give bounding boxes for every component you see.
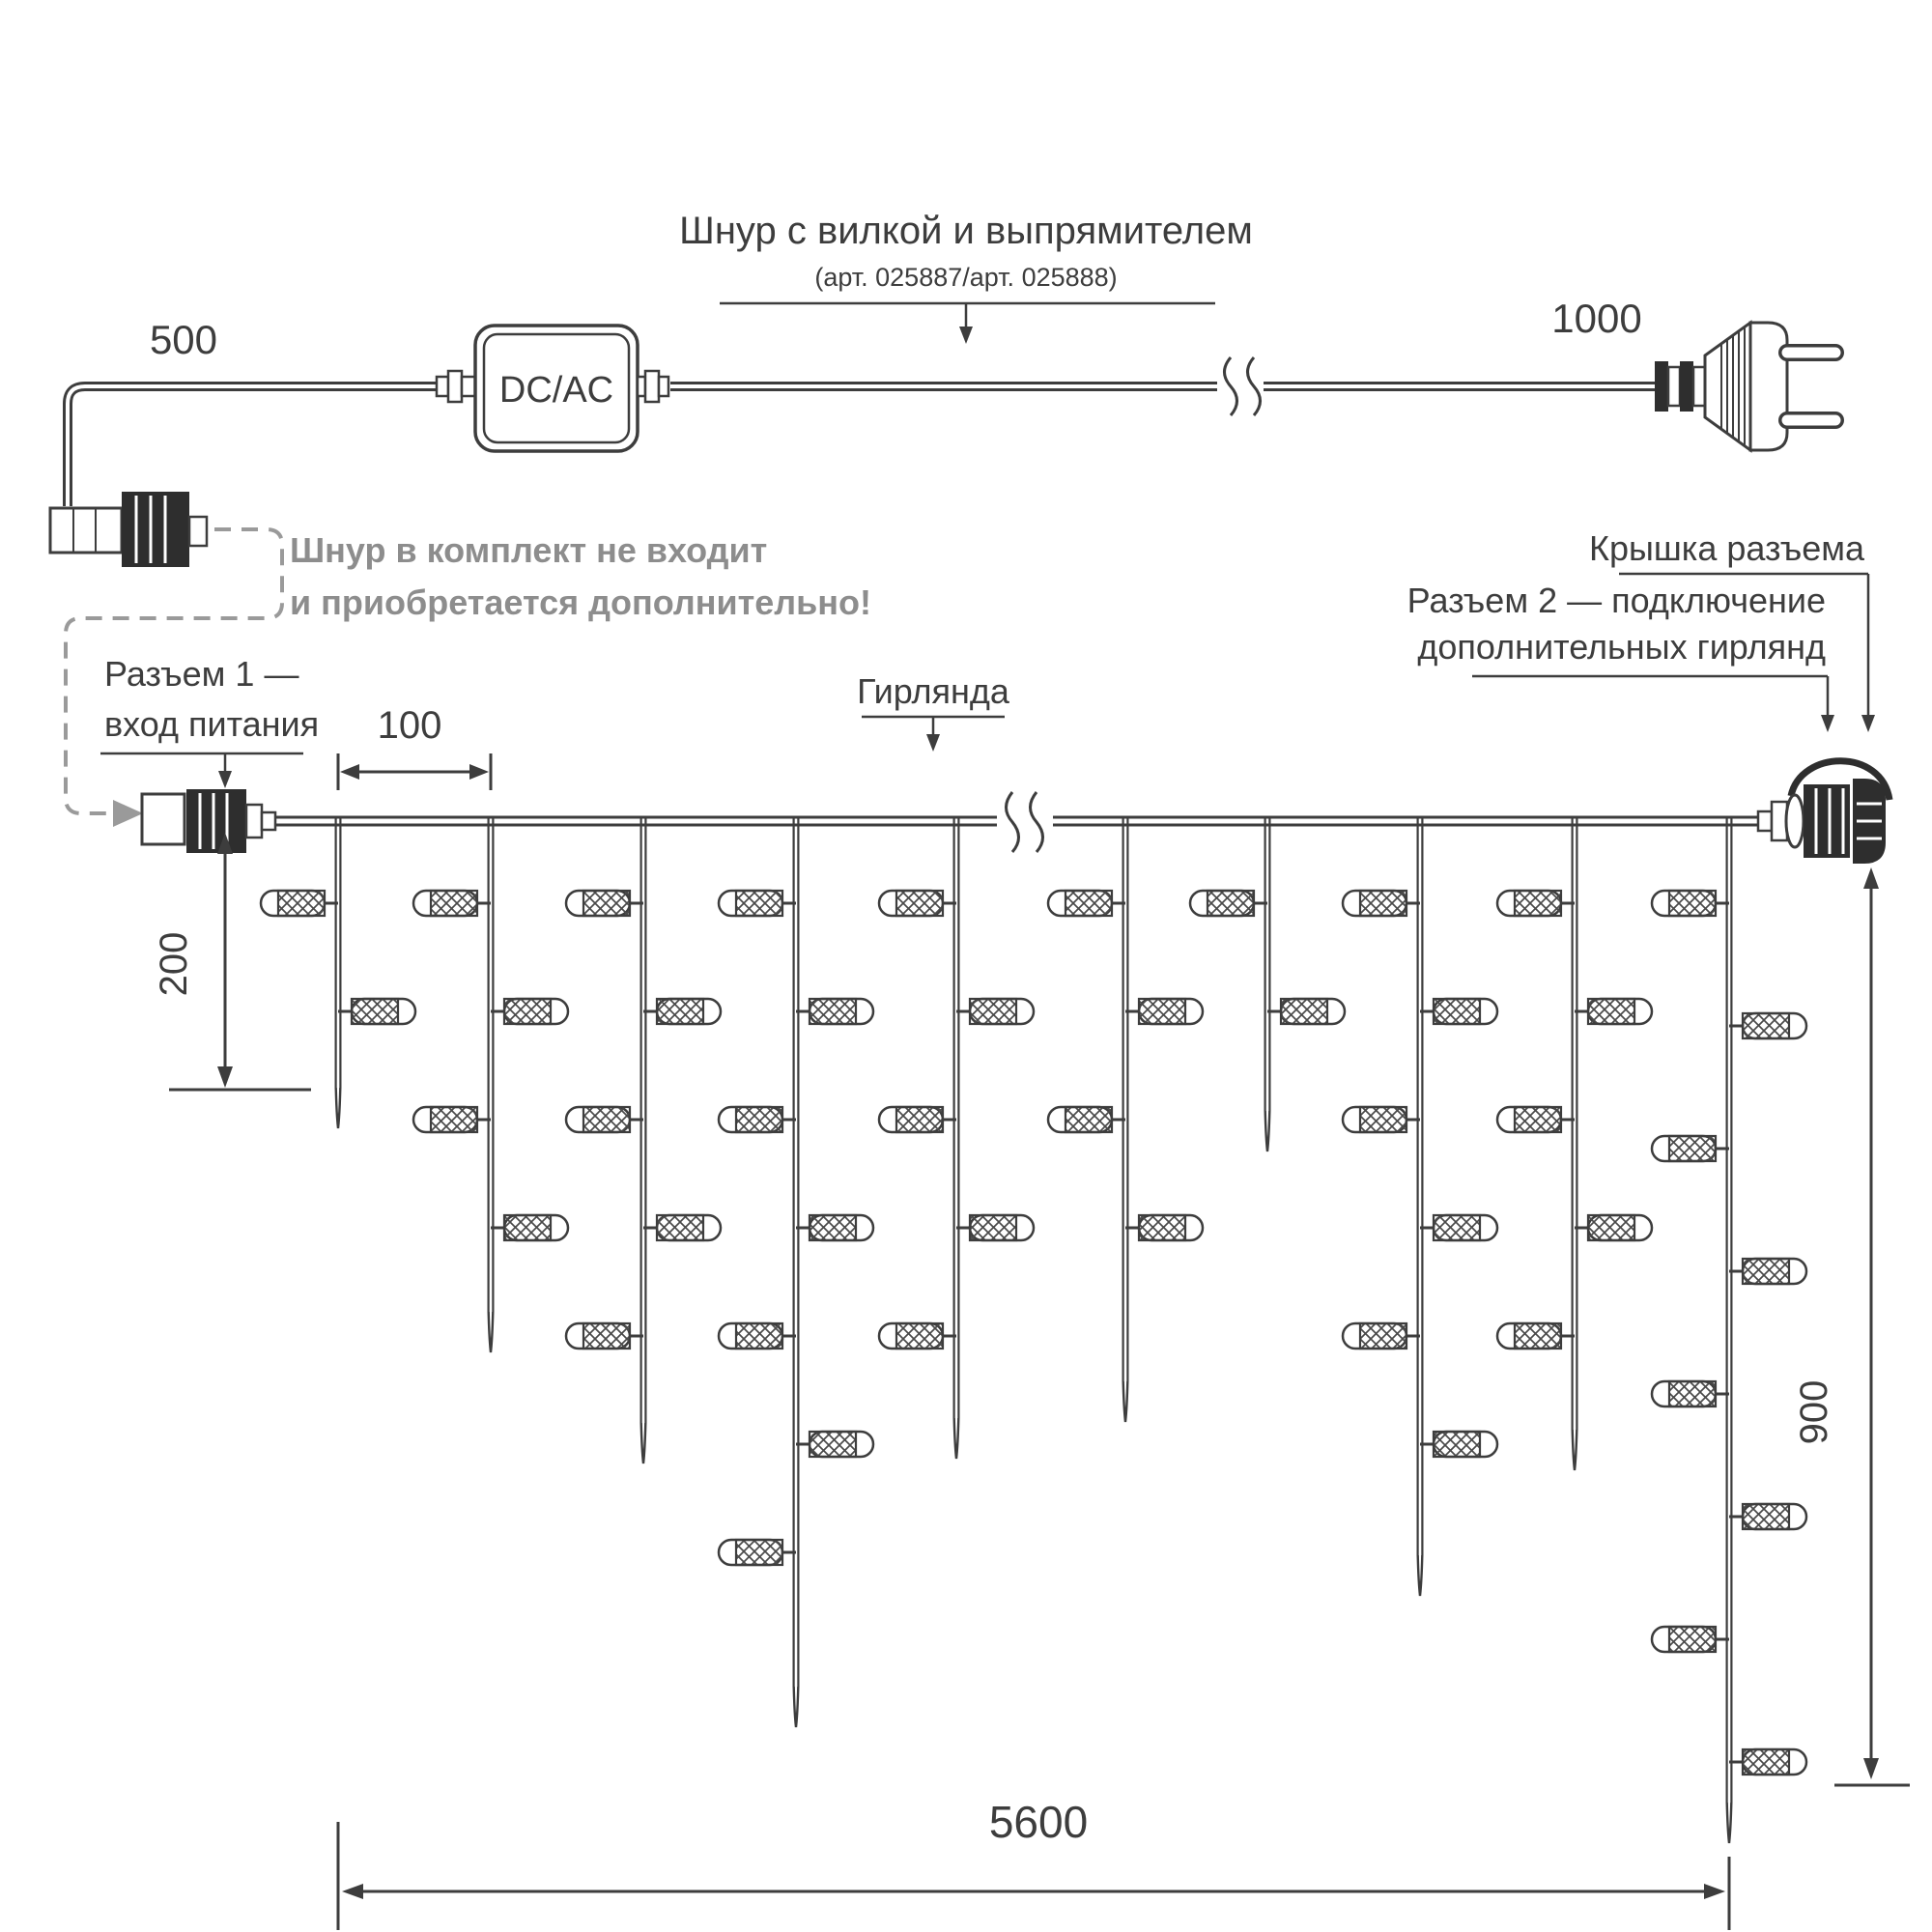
drop-tip	[1418, 1555, 1423, 1596]
arrow-down-icon	[1821, 715, 1834, 732]
connector2-label: Разъем 2 — подключение дополнительных ги…	[1407, 581, 1834, 732]
bulb-hatch	[736, 1540, 782, 1565]
connector2-label-line2: дополнительных гирлянд	[1417, 627, 1826, 667]
icicle-drop	[413, 817, 568, 1352]
cord-article-numbers: (арт. 025887/арт. 025888)	[814, 263, 1117, 292]
bulb-hatch	[970, 1215, 1016, 1240]
icicle-drop	[1343, 817, 1497, 1596]
bulb-hatch	[1743, 1259, 1789, 1284]
bulb-hatch	[583, 1107, 630, 1132]
arrow-right-icon	[469, 764, 489, 780]
drop-tip	[1265, 1111, 1270, 1151]
garland-main-wire	[273, 792, 1761, 852]
arrow-down-icon	[1863, 1758, 1879, 1779]
bulb-hatch	[583, 1323, 630, 1349]
bulb-hatch	[810, 999, 856, 1024]
bulb-hatch	[1139, 999, 1185, 1024]
bulb-hatch	[1434, 999, 1480, 1024]
dim-100-value: 100	[378, 704, 442, 747]
cord-title: Шнур с вилкой и выпрямителем	[679, 210, 1253, 252]
dim-900-value: 900	[1793, 1380, 1835, 1445]
bulb-hatch	[736, 891, 782, 916]
bulb-hatch	[1588, 1215, 1634, 1240]
bulb-hatch	[1360, 1323, 1406, 1349]
note-line2: и приобретается дополнительно!	[290, 582, 871, 622]
bulb-hatch	[810, 1215, 856, 1240]
bulb-hatch	[1434, 1432, 1480, 1457]
connector2-label-line1: Разъем 2 — подключение	[1407, 581, 1826, 620]
bulb-hatch	[431, 891, 477, 916]
drop-tip	[1123, 1381, 1128, 1422]
arrow-right-icon	[1704, 1884, 1725, 1899]
dimension-100: 100	[338, 704, 491, 790]
arrow-down-icon	[217, 1066, 233, 1088]
dim-1000: 1000	[1551, 296, 1641, 341]
diagram-canvas: Шнур с вилкой и выпрямителем (арт. 02588…	[0, 0, 1932, 1932]
adapter-label: DC/AC	[499, 370, 613, 411]
bulb-hatch	[736, 1323, 782, 1349]
drop-tip	[1573, 1430, 1577, 1470]
tether-ring	[1786, 795, 1804, 847]
connector-ridged-body	[186, 789, 246, 853]
drop-tip	[336, 1088, 341, 1128]
bulb-hatch	[736, 1107, 782, 1132]
bulb-hatch	[1360, 1107, 1406, 1132]
connector-ridged-body	[122, 492, 189, 567]
bulb-hatch	[1139, 1215, 1185, 1240]
gray-arrow-right-icon	[113, 800, 143, 827]
bulb-hatch	[1743, 1749, 1789, 1775]
icicle-drop	[261, 817, 415, 1128]
bulb-hatch	[1065, 891, 1112, 916]
connector-2-with-cap	[1758, 761, 1889, 864]
drop-tip	[794, 1687, 799, 1727]
bulb-hatch	[657, 1215, 703, 1240]
cap-label-text: Крышка разъема	[1589, 528, 1865, 568]
icicle-drop	[879, 817, 1034, 1459]
icicle-drop	[1497, 817, 1652, 1470]
dim-500: 500	[150, 317, 217, 362]
dimension-5600: 5600	[338, 1797, 1729, 1930]
arrow-down-icon	[959, 327, 973, 344]
icicle-drops	[261, 817, 1806, 1843]
bulb-hatch	[278, 891, 325, 916]
dimension-900: 900	[1793, 867, 1910, 1785]
icicle-drop	[1190, 817, 1345, 1151]
cord-output-connector	[50, 492, 207, 567]
bulb-hatch	[970, 999, 1016, 1024]
bulb-hatch	[504, 1215, 551, 1240]
power-cord-assembly: Шнур с вилкой и выпрямителем (арт. 02588…	[50, 210, 1835, 567]
bulb-hatch	[1515, 1107, 1561, 1132]
icicle-drop	[566, 817, 721, 1463]
bulb-hatch	[896, 1107, 943, 1132]
bulb-hatch	[896, 1323, 943, 1349]
connector1-label-line2: вход питания	[104, 704, 319, 744]
cable-break-icon	[997, 792, 1053, 852]
bulb-hatch	[1281, 999, 1327, 1024]
bulb-hatch	[657, 999, 703, 1024]
bulb-hatch	[1743, 1504, 1789, 1529]
bulb-hatch	[1360, 891, 1406, 916]
drop-tip	[489, 1312, 494, 1352]
bulb-hatch	[810, 1432, 856, 1457]
note-line1: Шнур в комплект не входит	[290, 530, 767, 570]
bulb-hatch	[504, 999, 551, 1024]
arrow-left-icon	[340, 764, 359, 780]
bulb-hatch	[431, 1107, 477, 1132]
drop-tip	[954, 1418, 959, 1459]
garland-label: Гирлянда	[857, 671, 1010, 752]
dc-ac-adapter: DC/AC	[437, 326, 668, 451]
icicle-drop	[1652, 817, 1806, 1843]
drop-tip	[1727, 1803, 1732, 1843]
bulb-hatch	[1588, 999, 1634, 1024]
bulb-hatch	[352, 999, 398, 1024]
icicle-drop	[719, 817, 873, 1727]
bulb-hatch	[1743, 1013, 1789, 1038]
bulb-hatch	[1669, 1136, 1716, 1161]
arrow-down-icon	[218, 771, 232, 788]
connector-1-power-input	[142, 789, 275, 853]
icicle-drop	[1048, 817, 1203, 1422]
garland-technical-drawing: Шнур с вилкой и выпрямителем (арт. 02588…	[0, 0, 1932, 1932]
bulb-hatch	[1515, 1323, 1561, 1349]
connector1-label: Разъем 1 — вход питания	[100, 654, 319, 788]
bulb-hatch	[1207, 891, 1254, 916]
bulb-hatch	[1434, 1215, 1480, 1240]
dim-5600-value: 5600	[989, 1797, 1088, 1847]
bulb-hatch	[1515, 891, 1561, 916]
cord-wire-left	[68, 386, 437, 506]
bulb-hatch	[1669, 1381, 1716, 1406]
bulb-hatch	[1669, 891, 1716, 916]
power-plug-icon	[1655, 323, 1835, 450]
bulb-hatch	[1669, 1627, 1716, 1652]
cable-break-icon	[1217, 357, 1264, 415]
arrow-up-icon	[1863, 867, 1879, 889]
arrow-left-icon	[342, 1884, 363, 1899]
arrow-down-icon	[1861, 715, 1875, 732]
bulb-hatch	[583, 891, 630, 916]
bulb-hatch	[1065, 1107, 1112, 1132]
bulb-hatch	[896, 891, 943, 916]
drop-tip	[641, 1423, 646, 1463]
dimension-200: 200	[153, 833, 311, 1090]
garland-label-text: Гирлянда	[857, 671, 1010, 711]
connector1-label-line1: Разъем 1 —	[104, 654, 298, 694]
dim-200-value: 200	[153, 932, 195, 997]
arrow-down-icon	[926, 734, 940, 752]
